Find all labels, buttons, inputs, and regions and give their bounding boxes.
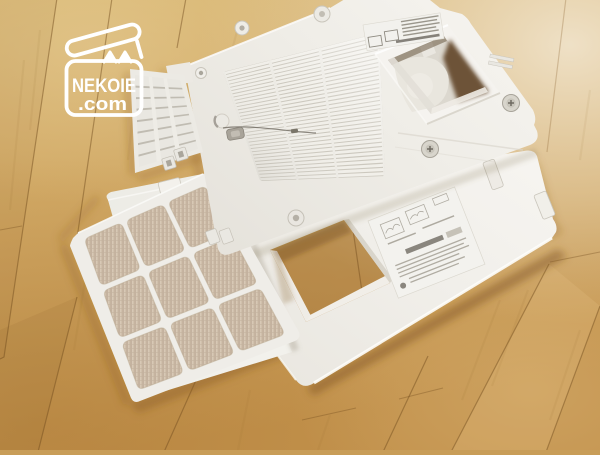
- svg-text:.com: .com: [78, 93, 127, 114]
